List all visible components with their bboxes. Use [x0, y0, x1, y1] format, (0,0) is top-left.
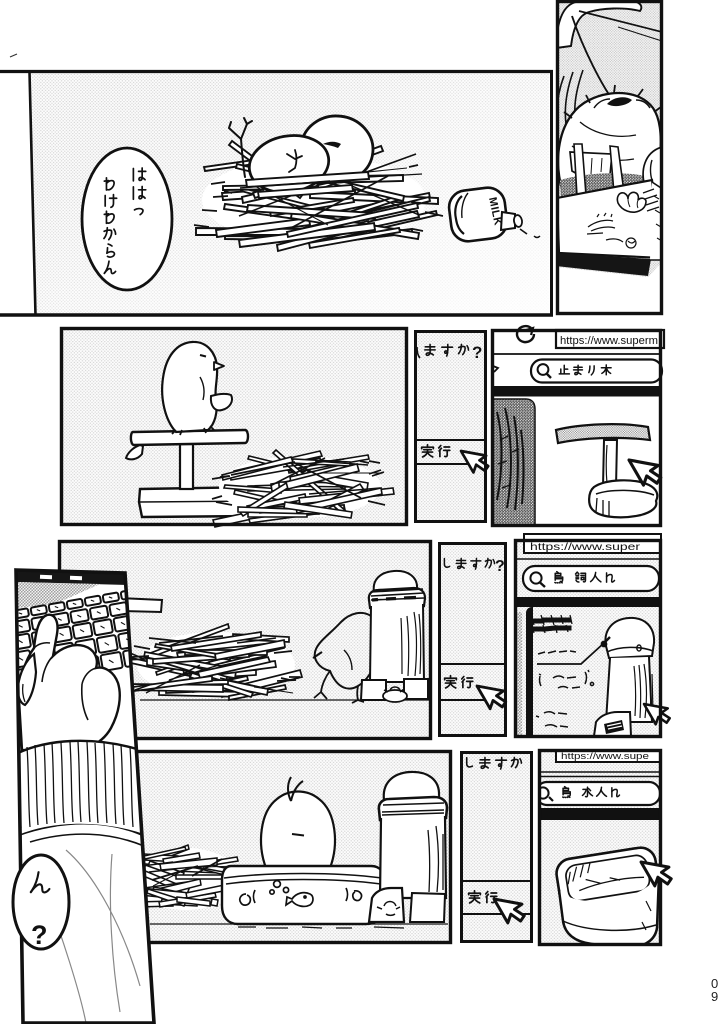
svg-text:https://www.superm: https://www.superm — [560, 335, 658, 347]
svg-text:https://www.supe: https://www.supe — [561, 751, 649, 762]
svg-text:?: ? — [472, 343, 482, 362]
svg-text:?: ? — [495, 558, 505, 575]
svg-text:https://www.super: https://www.super — [530, 542, 641, 553]
svg-text:9: 9 — [711, 989, 718, 1004]
svg-text:?: ? — [31, 920, 48, 950]
